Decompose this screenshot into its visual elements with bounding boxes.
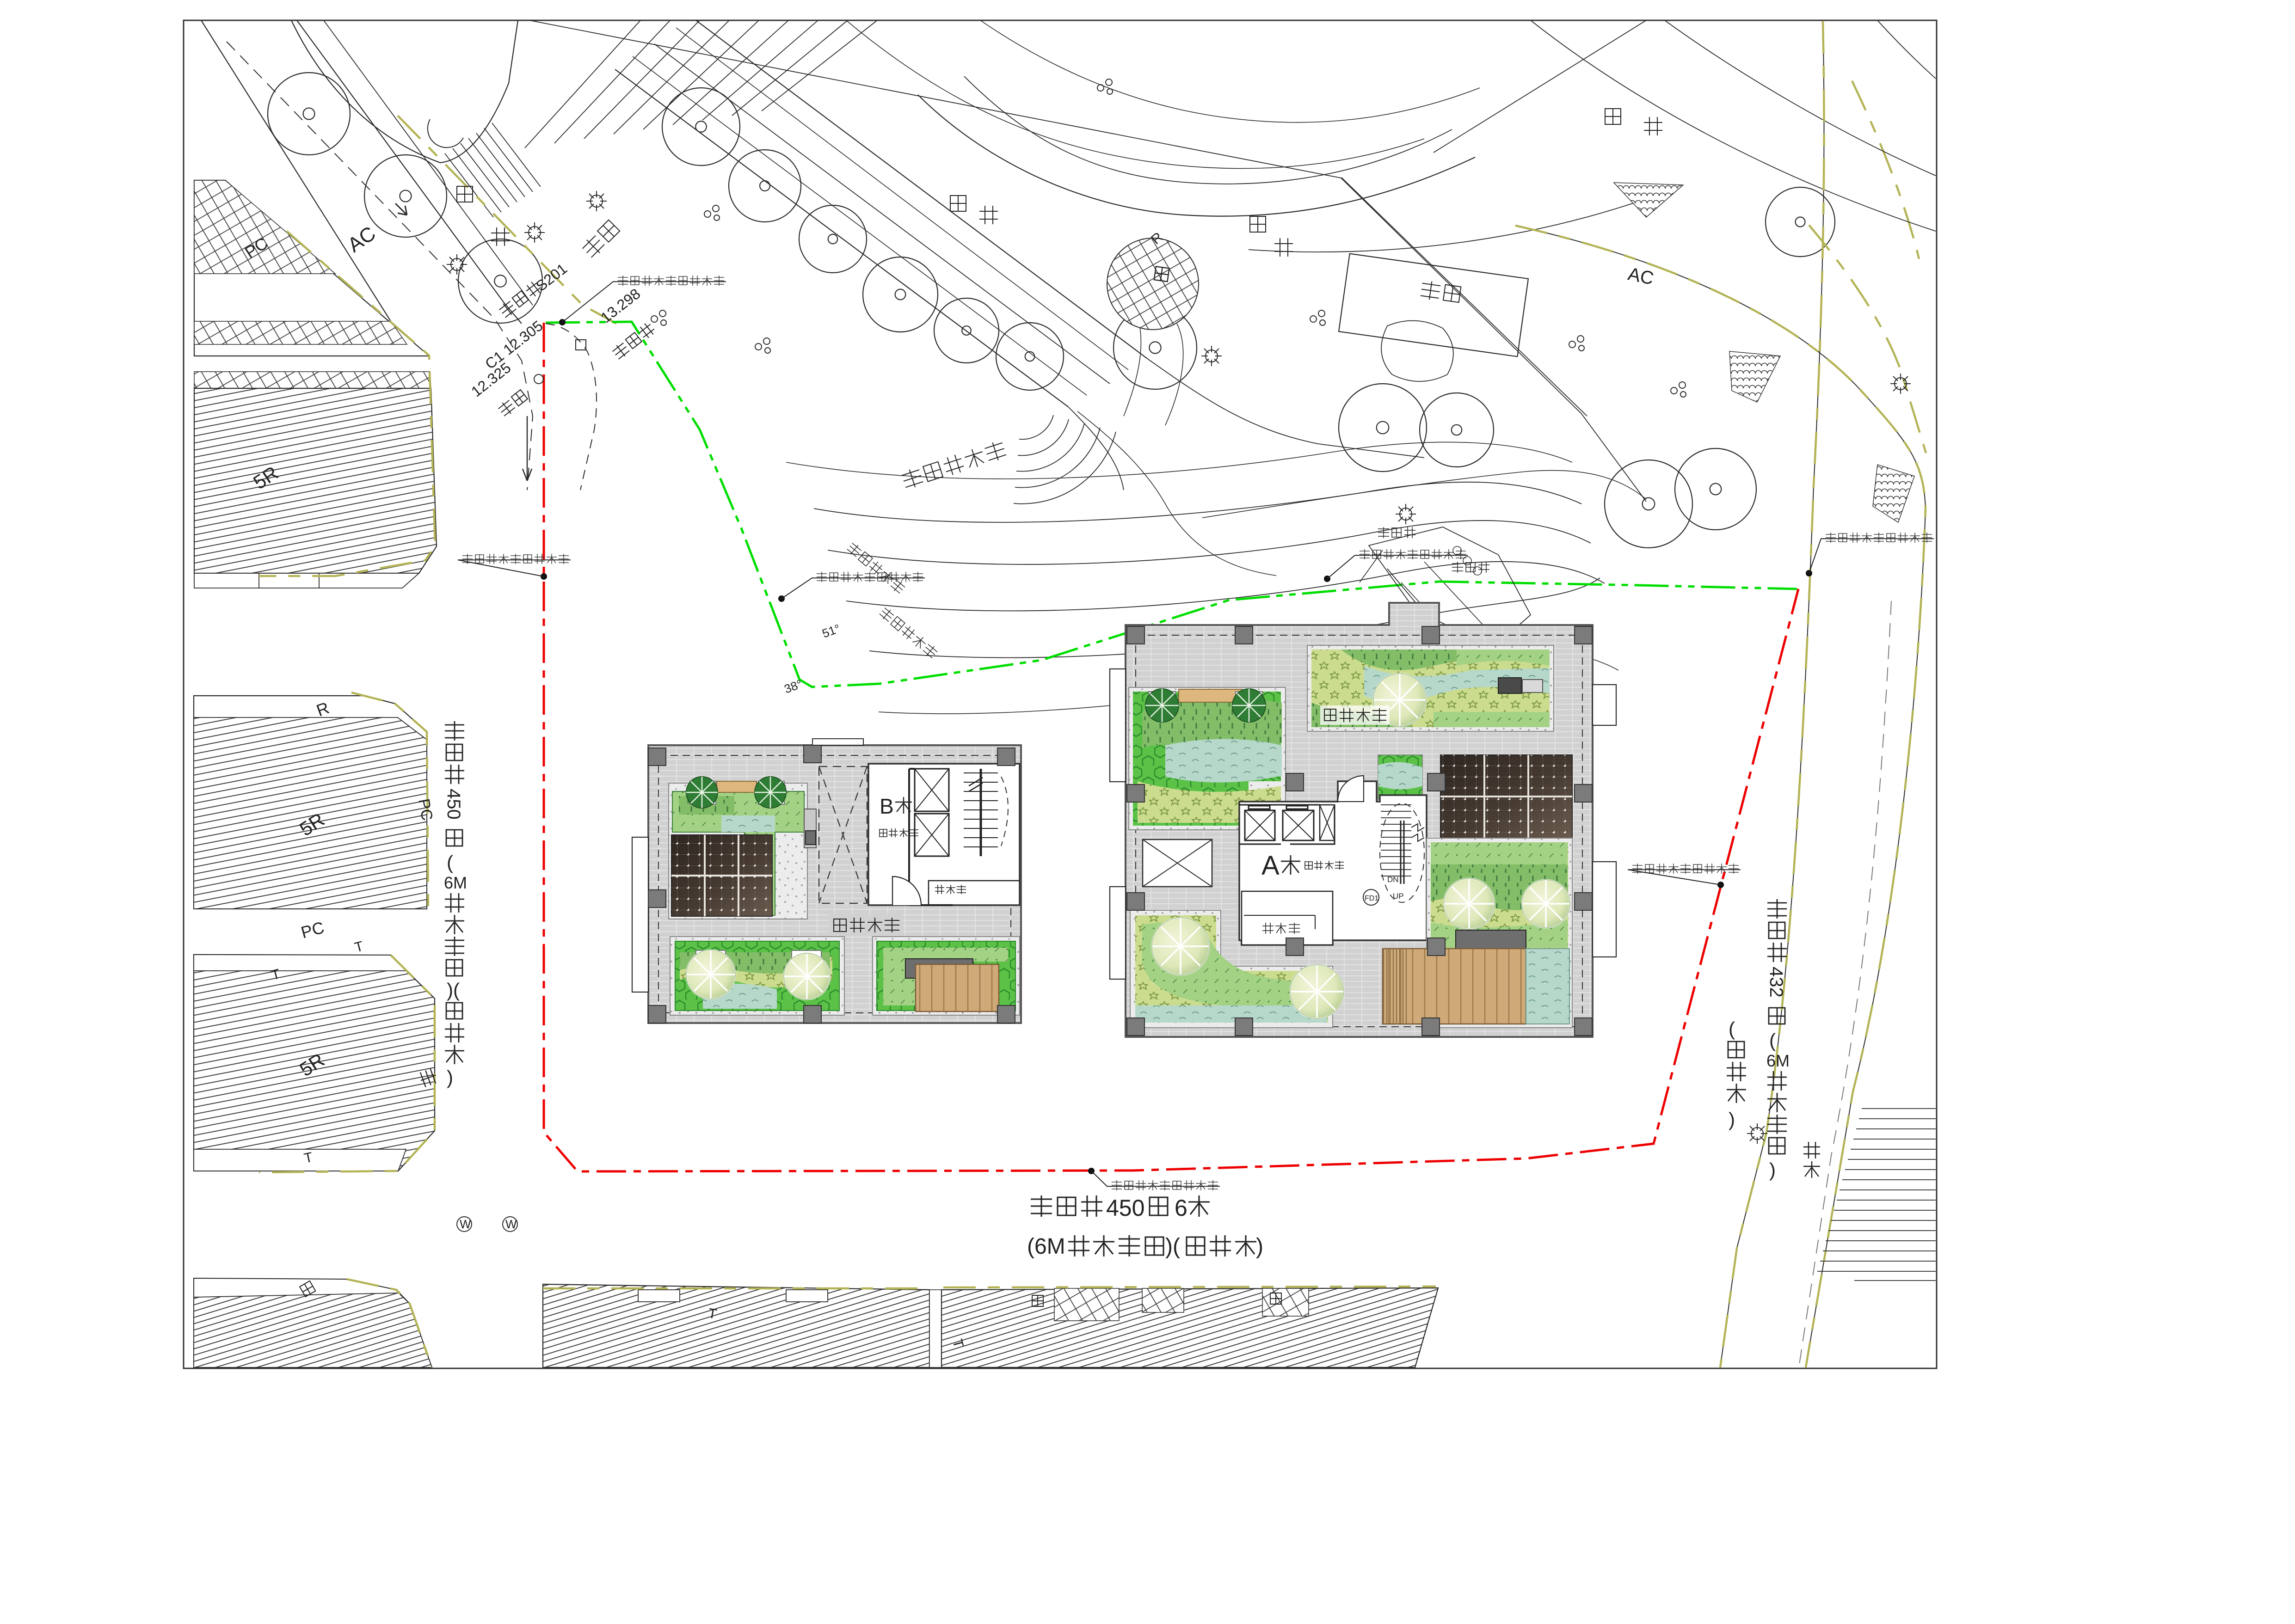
- svg-text:): ): [1256, 1234, 1263, 1259]
- svg-text:432: 432: [1766, 967, 1786, 998]
- svg-text:W: W: [460, 1217, 471, 1231]
- svg-text:): ): [447, 1066, 453, 1088]
- svg-text:450: 450: [1106, 1195, 1144, 1221]
- svg-text:(: (: [1729, 1018, 1735, 1040]
- svg-text:DN: DN: [1387, 875, 1399, 884]
- svg-text:): ): [1769, 1159, 1776, 1181]
- svg-text:)(: )(: [447, 979, 460, 1001]
- svg-text:450: 450: [443, 789, 464, 820]
- svg-text:UP: UP: [1393, 892, 1404, 901]
- svg-text:FD1: FD1: [1365, 895, 1378, 902]
- svg-text:PC: PC: [415, 797, 436, 822]
- svg-text:)(: )(: [1165, 1234, 1180, 1259]
- svg-text:W: W: [505, 1217, 517, 1231]
- svg-text:6: 6: [1175, 1195, 1187, 1221]
- svg-text:6M: 6M: [1766, 1051, 1790, 1070]
- svg-text:B: B: [880, 794, 894, 818]
- svg-text:): ): [1729, 1109, 1735, 1130]
- svg-text:6M: 6M: [444, 873, 467, 892]
- svg-text:(: (: [1769, 1030, 1776, 1051]
- svg-text:A: A: [1261, 851, 1280, 881]
- svg-text:(: (: [447, 852, 453, 873]
- svg-text:(6M: (6M: [1027, 1234, 1065, 1259]
